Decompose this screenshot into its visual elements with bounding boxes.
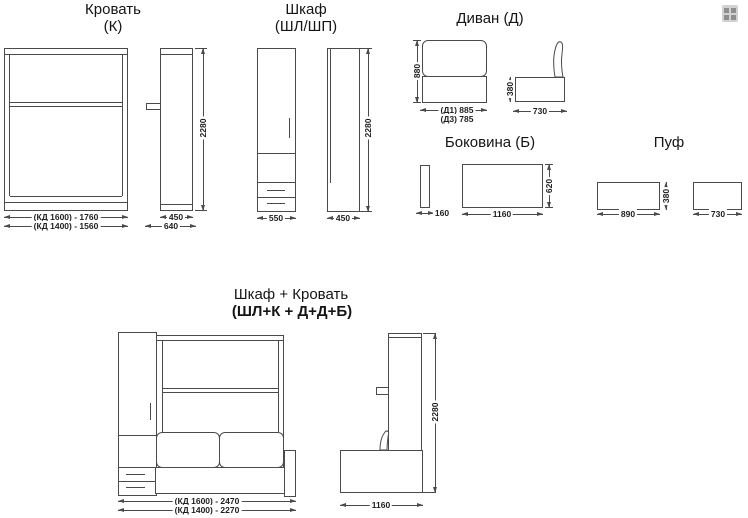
wardrobe-drawer-handle [267,203,285,204]
sofa-side-seat [515,77,565,102]
combo-cabinet-door-handle [150,403,151,420]
combo-side-top-cap [389,337,421,338]
pouf-front-view [597,182,660,210]
furniture-drawing-canvas: Кровать (К) (КД 1600) - 1760 (КД 1400) -… [0,0,748,518]
wardrobe-front-outline [257,48,296,212]
bed-front-mid-line [10,102,122,103]
combo-subtitle: (ШЛ+К + Д+Д+Б) [232,304,352,320]
grid-icon-square [731,15,736,20]
bed-width-1400-label: (КД 1400) - 1560 [32,221,101,231]
bed-subtitle: (К) [104,19,123,35]
bed-front-bottom-band [10,196,122,197]
bed-front-left-rail [9,55,10,196]
combo-height-label: 2280 [430,401,440,424]
combo-bed-top-edge [157,335,284,336]
combo-title: Шкаф + Кровать [234,287,348,303]
wardrobe-subtitle: (ШЛ/ШП) [275,19,337,35]
combo-bed-mid-line [162,392,279,393]
bed-front-top-band [5,54,127,55]
side-panel-title: Боковина (Б) [445,135,535,151]
combo-sofa-seat [155,467,285,494]
combo-side-backrest [378,430,391,451]
bed-front-right-rail [122,55,123,196]
wardrobe-panel-line [258,182,295,183]
combo-sofa-cushion [219,432,284,468]
side-panel-edge-view [420,165,430,208]
wardrobe-height-label: 2280 [363,117,373,140]
bed-side-outline [160,48,193,211]
side-panel-thickness-dim-line [416,213,434,214]
combo-bed-mid-line [162,388,279,389]
pouf-title: Пуф [654,135,684,151]
bed-side-handle [146,103,161,110]
combo-cabinet-drawer-handle [126,487,145,488]
combo-bed-right-rail [278,340,279,432]
combo-side-handle [376,387,389,395]
side-panel-length-label: 1160 [491,209,513,219]
wardrobe-side-outline [327,48,360,212]
wardrobe-drawer-divider [258,197,295,198]
combo-bed-top-band [157,340,284,341]
wardrobe-door-handle [289,118,290,138]
combo-cabinet-outline [118,332,157,496]
sofa-depth-label: 730 [531,106,549,116]
combo-side-bed-panel [388,333,422,451]
sofa-seat [422,76,487,103]
combo-cabinet-drawer-handle [126,474,145,475]
bed-height-label: 2280 [198,117,208,140]
bed-side-bottom-cap [161,204,192,205]
pouf-height-label: 380 [661,187,671,205]
wardrobe-side-door-edge [330,49,331,183]
sofa-height-label: 880 [412,62,422,80]
wardrobe-door-bottom-line [258,153,295,154]
combo-bed-left-rail [162,340,163,432]
side-panel-thickness-label: 160 [433,208,451,218]
wardrobe-width-label: 550 [267,213,285,223]
grid-icon[interactable] [722,5,738,22]
combo-sofa-cushion [156,432,220,468]
bed-title: Кровать [85,2,141,18]
bed-side-top-cap [161,54,192,55]
combo-width-1400-label: (КД 1400) - 2270 [173,505,242,515]
pouf-width-label: 890 [619,209,637,219]
wardrobe-title: Шкаф [285,2,326,18]
combo-cabinet-panel-line [119,467,156,468]
bed-depth-total-label: 640 [162,221,180,231]
side-panel-height-label: 620 [544,177,554,195]
sofa-title: Диван (Д) [456,11,523,27]
combo-side-panel [284,450,296,497]
grid-icon-square [724,8,729,13]
sofa-side-backrest [551,41,567,78]
pouf-side-view [693,182,742,210]
pouf-depth-label: 730 [709,209,727,219]
combo-side-base [340,450,423,493]
grid-icon-square [731,8,736,13]
wardrobe-drawer-handle [267,190,285,191]
bed-front-mid-line [10,106,122,107]
sofa-width-d3-label: (Д3) 785 [439,114,476,124]
bed-front-outline [4,48,128,211]
grid-icon-square [724,15,729,20]
wardrobe-depth-label: 450 [334,213,352,223]
side-panel-face-view [462,164,543,208]
combo-depth-label: 1160 [370,500,392,510]
sofa-backrest-cushion [422,40,487,77]
combo-cabinet-door-bottom [119,435,156,436]
combo-cabinet-drawer-divider [119,481,156,482]
bed-front-bottom-band [5,202,127,203]
sofa-seat-height-label: 380 [505,80,515,98]
